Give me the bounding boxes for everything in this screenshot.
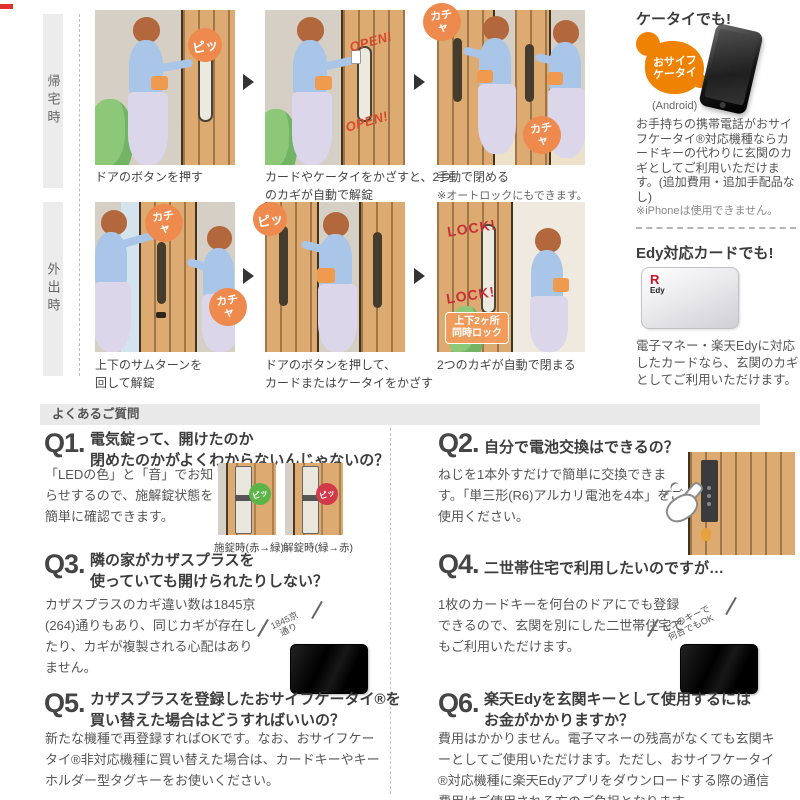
row-label-homecoming: 帰宅時: [43, 14, 63, 188]
step-caption: 上下のサムターンを: [95, 356, 202, 374]
q2-number: Q2.: [438, 428, 479, 459]
emphasis-tick: [311, 601, 323, 619]
faq-column-divider: [390, 428, 391, 794]
q4-number: Q4.: [438, 549, 479, 580]
door-frame: [195, 202, 197, 352]
lock-panel-unlocked-illustration: ピッ: [285, 463, 343, 535]
step-caption: 回して解錠: [95, 374, 155, 392]
door-hook: [701, 528, 711, 541]
product-info-page: 帰宅時 外出時 ピッ: [0, 0, 800, 800]
q3-answer: カザスプラスのカギ違い数は1845京(264)通りもあり、同じカギが存在したり、…: [45, 594, 265, 678]
step-arrow-icon: [414, 268, 425, 284]
edy-heading: Edy対応カードでも!: [636, 242, 774, 263]
battery-change-illustration: [663, 452, 795, 555]
homecoming-step2-panel: OPEN! OPEN!: [265, 10, 405, 165]
homecoming-step1-panel: ピッ: [95, 10, 235, 165]
homecoming-step3-panel: カチャ カチャ: [437, 10, 585, 165]
faq-header-bar: よくあるご質問: [40, 404, 760, 425]
step-caption-note: ※オートロックにもできます。: [437, 187, 588, 203]
step-caption: カードやケータイをかざすと、2つ: [265, 168, 451, 186]
emphasis-tick: [725, 597, 737, 615]
q4-question: 二世帯住宅で利用したいのですが…: [484, 558, 724, 579]
q6-number: Q6.: [438, 688, 479, 719]
smartphone-illustration: [698, 23, 764, 116]
step-caption: ドアのボタンを押す: [95, 168, 203, 186]
row-divider-dashed: [79, 14, 80, 376]
q2-question: 自分で電池交換はできるの？: [484, 437, 679, 458]
door-handle: [373, 232, 382, 308]
q3-question: 隣の家がカザスプラスを使っていても開けられたりしない？: [90, 550, 328, 592]
door-frame: [341, 10, 343, 165]
aside-divider-dashed: [636, 227, 796, 229]
q5-answer: 新たな機種で再登録すればOKです。なお、おサイフケータイ®非対応機種に買い替えた…: [45, 728, 381, 791]
edy-logo: Edy: [650, 286, 665, 295]
step-arrow-icon: [243, 74, 254, 90]
goingout-step3-panel: LOCK! LOCK! 上下2ヶ所 同時ロック: [437, 202, 585, 352]
door-scene-illustration: [437, 10, 585, 165]
iphone-note: ※iPhoneは使用できません。: [636, 202, 778, 218]
mobile-body-text: お手持ちの携帯電話がおサイフケータイ®対応機種ならカードキーの代わりに玄関のカギ…: [636, 117, 799, 204]
door-frame: [181, 10, 183, 165]
step-caption: 2つのカギが自動で閉まる: [437, 356, 576, 374]
door-handle: [279, 226, 288, 306]
rakuten-r-logo: R: [650, 273, 659, 286]
row-label-going-out: 外出時: [43, 202, 63, 376]
q6-question: 楽天Edyを玄関キーとして使用するにはお金がかかりますか？: [484, 689, 751, 731]
door-frame: [511, 202, 513, 352]
door: [361, 202, 405, 352]
lock-unit: [701, 460, 718, 522]
door-scene-illustration: OPEN! OPEN!: [265, 10, 405, 165]
key-variation-label: 1845京通り: [269, 610, 304, 640]
door-handle: [525, 44, 534, 102]
door-handle: [157, 242, 166, 304]
door-frame: [139, 202, 141, 352]
edy-card-illustration: R Edy: [641, 267, 739, 329]
q5-question: カザスプラスを登録したおサイフケータイ®を買い替えた場合はどうすればいいの？: [90, 689, 401, 731]
goingout-step2-panel: ピッ: [265, 202, 405, 352]
door-handle: [453, 38, 462, 102]
q5-number: Q5.: [44, 688, 85, 719]
lock-panel-locked-illustration: ピッ: [218, 463, 276, 535]
card-key-illustration: [680, 644, 758, 694]
step-caption: カードまたはケータイをかざす: [265, 374, 433, 392]
q1-answer: 「LEDの色」と「音」でお知らせするので、施解錠状態を簡単に確認できます。: [45, 464, 219, 527]
q3-number: Q3.: [44, 549, 85, 580]
step-arrow-icon: [243, 268, 254, 284]
q2-answer: ねじを1本外すだけで簡単に交換できます。「単三形(R6)アルカリ電池を4本」をご…: [438, 464, 690, 527]
osaifu-keitai-logo: おサイフ ケータイ: [638, 34, 704, 94]
step-caption: 手動で閉める: [437, 168, 509, 186]
goingout-step1-panel: カチャ カチャ: [95, 202, 235, 352]
simultaneous-lock-badge: 上下2ヶ所 同時ロック: [445, 312, 509, 344]
q6-answer: 費用はかかりません。電子マネーの残高がなくても玄関キーとしてご使用いただけます。…: [438, 728, 778, 800]
q1-number: Q1.: [44, 428, 85, 459]
door-frame: [359, 202, 361, 352]
edy-body-text: 電子マネー・楽天Edyに対応したカードなら、玄関のカギとしてご利用いただけます。: [636, 338, 800, 389]
step-arrow-icon: [414, 74, 425, 90]
red-mark: [0, 4, 13, 9]
thumbturn: [156, 312, 166, 318]
platform-label: (Android): [652, 100, 697, 112]
card-key-illustration: [290, 644, 368, 694]
step-caption: ドアのボタンを押して、: [265, 356, 396, 374]
